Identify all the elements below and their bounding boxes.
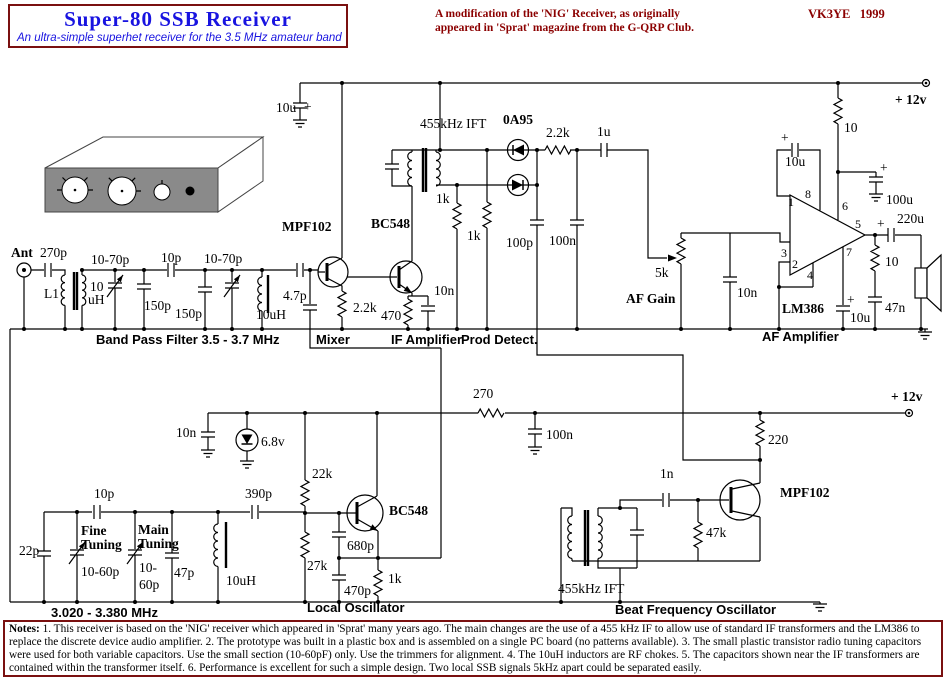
schematic-canvas: 10u+455kHz IFT0A952.2k1u+ 12v10+10u18324… xyxy=(0,0,944,680)
supply-top-label: + 12v xyxy=(895,92,927,107)
section-ifamp: IF Amplifier xyxy=(391,332,462,347)
main-label-3: 10- xyxy=(139,560,158,575)
supply-bottom-label: + 12v xyxy=(891,389,923,404)
phone-jack xyxy=(186,187,195,196)
choke-10uh-lo-label: 10uH xyxy=(226,573,256,588)
notes-body: 1. This receiver is based on the 'NIG' r… xyxy=(9,623,921,674)
res-47k-label: 47k xyxy=(706,525,727,540)
cap-10p-lo-label: 10p xyxy=(94,486,115,501)
trim1-label: 10-70p xyxy=(91,252,129,267)
cap-470p-label: 470p xyxy=(344,583,371,598)
pin-5: 5 xyxy=(855,217,861,231)
plus-c18: + xyxy=(781,130,789,145)
trim2-label: 10-70p xyxy=(204,251,242,266)
res-1k-a-label: 1k xyxy=(436,191,450,206)
main-label-4: 60p xyxy=(139,577,160,592)
cap-1n-label: 1n xyxy=(660,466,674,481)
fine-label-3: 10-60p xyxy=(81,564,119,579)
section-proddet: Prod Detect. xyxy=(461,332,538,347)
zener-diode xyxy=(236,429,258,451)
detector-diodes xyxy=(508,140,529,196)
l1-uh-label: uH xyxy=(88,292,105,307)
ic-lm386-label: LM386 xyxy=(782,301,824,316)
res-470-label: 470 xyxy=(381,308,402,323)
cap-10n-af-label: 10n xyxy=(737,285,758,300)
cap-10n-if-label: 10n xyxy=(434,283,455,298)
plus-10u-supply: + xyxy=(304,99,312,114)
res-2k2-mixer-label: 2.2k xyxy=(353,300,377,315)
pot-5k-label: 5k xyxy=(655,265,669,280)
cap-10n-lo-label: 10n xyxy=(176,425,197,440)
page: Super-80 SSB Receiver An ultra-simple su… xyxy=(0,0,944,680)
choke-10uh-bpf-label: 10uH xyxy=(256,307,286,322)
section-lo: Local Oscillator xyxy=(307,600,405,615)
volume-knob xyxy=(154,184,170,200)
mixer-mpf102-label: MPF102 xyxy=(282,219,332,234)
cap-100p-label: 100p xyxy=(506,235,533,250)
section-mixer: Mixer xyxy=(316,332,350,347)
cap-10p-bpf-label: 10p xyxy=(161,250,182,265)
pin-7: 7 xyxy=(846,245,852,259)
cap-100n-bot-label: 100n xyxy=(546,427,573,442)
section-bpf: Band Pass Filter 3.5 - 3.7 MHz xyxy=(96,332,280,347)
res-10-zobel-label: 10 xyxy=(885,254,899,269)
cap-47n-label: 47n xyxy=(885,300,906,315)
speaker xyxy=(915,255,941,311)
receiver-photo xyxy=(45,137,263,212)
cap-680p-label: 680p xyxy=(347,538,374,553)
cap-100n-det-label: 100n xyxy=(549,233,576,248)
diode-0a95-label: 0A95 xyxy=(503,112,533,127)
af-gain-label: AF Gain xyxy=(626,291,676,306)
cap-47p-label: 47p xyxy=(174,565,195,580)
pin-2: 2 xyxy=(792,257,798,271)
notes-heading: Notes: xyxy=(9,623,40,635)
cap-22p-label: 22p xyxy=(19,543,40,558)
pin-3: 3 xyxy=(781,246,787,260)
res-22k-label: 22k xyxy=(312,466,333,481)
fine-label-1: Fine xyxy=(81,523,107,538)
lo-bc548-label: BC548 xyxy=(389,503,428,518)
fine-label-2: Tuning xyxy=(81,537,122,552)
section-afamp: AF Amplifier xyxy=(762,329,839,344)
cap-1u-label: 1u xyxy=(597,124,611,139)
cap-390p-label: 390p xyxy=(245,486,272,501)
pin-1: 1 xyxy=(788,195,794,209)
cap-150p-1-label: 150p xyxy=(144,298,171,313)
semiconductors xyxy=(318,257,760,531)
res-270-label: 270 xyxy=(473,386,494,401)
pin-4: 4 xyxy=(807,268,813,282)
pin-6: 6 xyxy=(842,199,848,213)
plus-10u-pin7: + xyxy=(847,292,855,307)
cap-220u-label: 220u xyxy=(897,211,924,226)
ift1-label: 455kHz IFT xyxy=(420,116,487,131)
cap-100u-label: 100u xyxy=(886,192,913,207)
notes-box: Notes: 1. This receiver is based on the … xyxy=(3,620,943,677)
res-220-label: 220 xyxy=(768,432,789,447)
main-label-2: Tuning xyxy=(138,536,179,551)
ift2-label: 455kHz IFT xyxy=(558,581,625,596)
cap-10u-18-label: 10u xyxy=(785,154,806,169)
ant-label: Ant xyxy=(11,245,33,260)
res-1k-lo-label: 1k xyxy=(388,571,402,586)
main-label-1: Main xyxy=(138,522,169,537)
l1-label: L1 xyxy=(44,286,59,301)
zener-6v8-label: 6.8v xyxy=(261,434,285,449)
section-bfo: Beat Frequency Oscillator xyxy=(615,602,776,617)
plus-100u: + xyxy=(880,160,888,175)
cap-4p7-label: 4.7p xyxy=(283,288,307,303)
cap-10u-pin7-label: 10u xyxy=(850,310,871,325)
res-1k-b-label: 1k xyxy=(467,228,481,243)
cap-150p-2-label: 150p xyxy=(175,306,202,321)
cap-10u-supply-label: 10u xyxy=(276,100,297,115)
res-27k-label: 27k xyxy=(307,558,328,573)
res-10-supply-label: 10 xyxy=(844,120,858,135)
pin-8: 8 xyxy=(805,187,811,201)
res-2k2-det-label: 2.2k xyxy=(546,125,570,140)
bfo-mpf102-label: MPF102 xyxy=(780,485,830,500)
section-lo-range: 3.020 - 3.380 MHz xyxy=(51,605,158,620)
cap-270p-label: 270p xyxy=(40,245,67,260)
plus-220u: + xyxy=(877,216,885,231)
ifamp-bc548-label: BC548 xyxy=(371,216,410,231)
